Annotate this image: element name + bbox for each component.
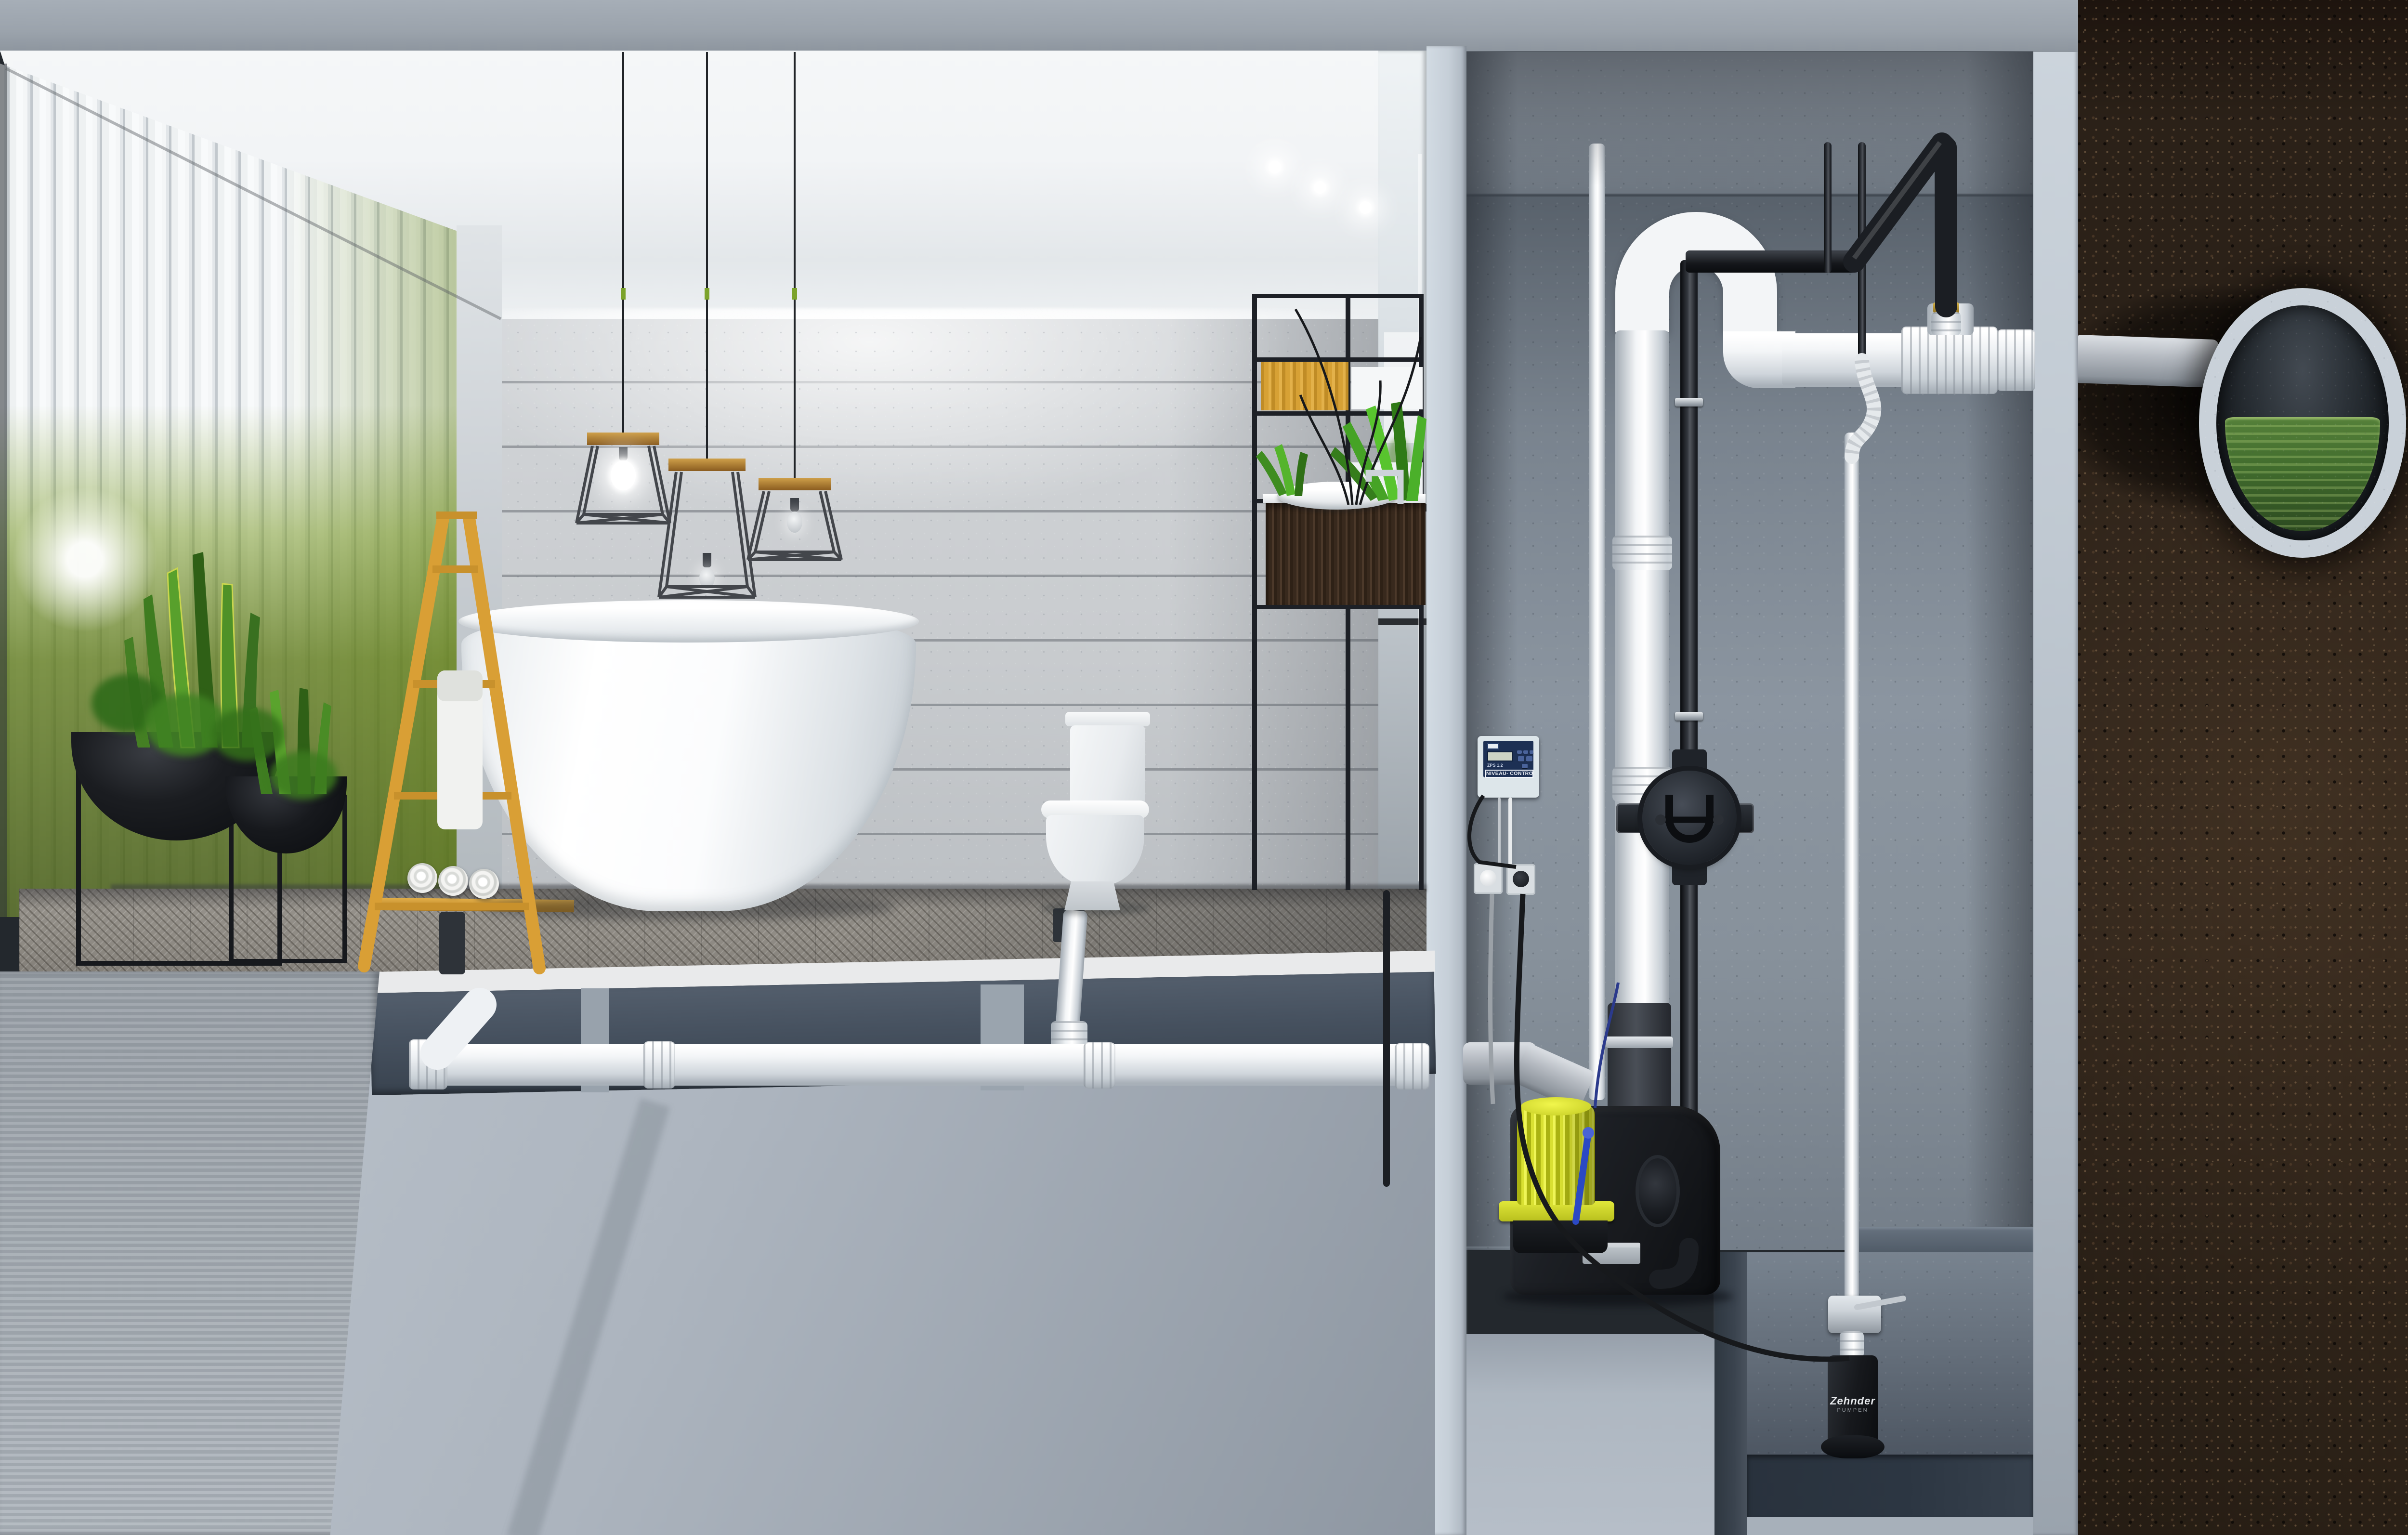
detail-overlay — [0, 0, 2408, 1535]
vanity-plant-leaves — [1256, 444, 1308, 496]
fern-cluster-3 — [212, 708, 284, 761]
sump-pump-cable — [1517, 894, 1850, 1359]
pendant-cage-1 — [576, 446, 670, 523]
cutaway-scene: ZPS 1.2 NIVEAU- CONTROLLER Zehnder PUMPE… — [0, 0, 2408, 1535]
pendant-cords — [623, 52, 795, 478]
tank-blue-lever — [1576, 1133, 1588, 1221]
pressure-loop-highlight — [1854, 143, 1940, 258]
tub-trap-pipe — [437, 1005, 480, 1053]
valve-pin-right — [1713, 814, 1724, 825]
valve-pin-left — [1655, 814, 1666, 825]
cord-sleeves — [621, 288, 797, 300]
ceiling-edge-line — [6, 68, 501, 319]
fern-cluster-4 — [270, 751, 337, 800]
pressure-loop-pipe — [1854, 144, 1946, 306]
controller-cable-loop — [1469, 796, 1516, 867]
float-switch-cable — [1595, 983, 1618, 1108]
pendant-cage-3 — [748, 491, 841, 560]
check-valve-handle — [1661, 795, 1718, 839]
sump-valve-lever — [1857, 1299, 1903, 1307]
tank-outlet-elbow — [1659, 1247, 1689, 1279]
motor-power-cable — [1491, 894, 1493, 1104]
hanging-towel-fold — [437, 670, 483, 701]
pendant-cage-2 — [659, 472, 755, 597]
tank-lever-nut — [1583, 1127, 1594, 1139]
